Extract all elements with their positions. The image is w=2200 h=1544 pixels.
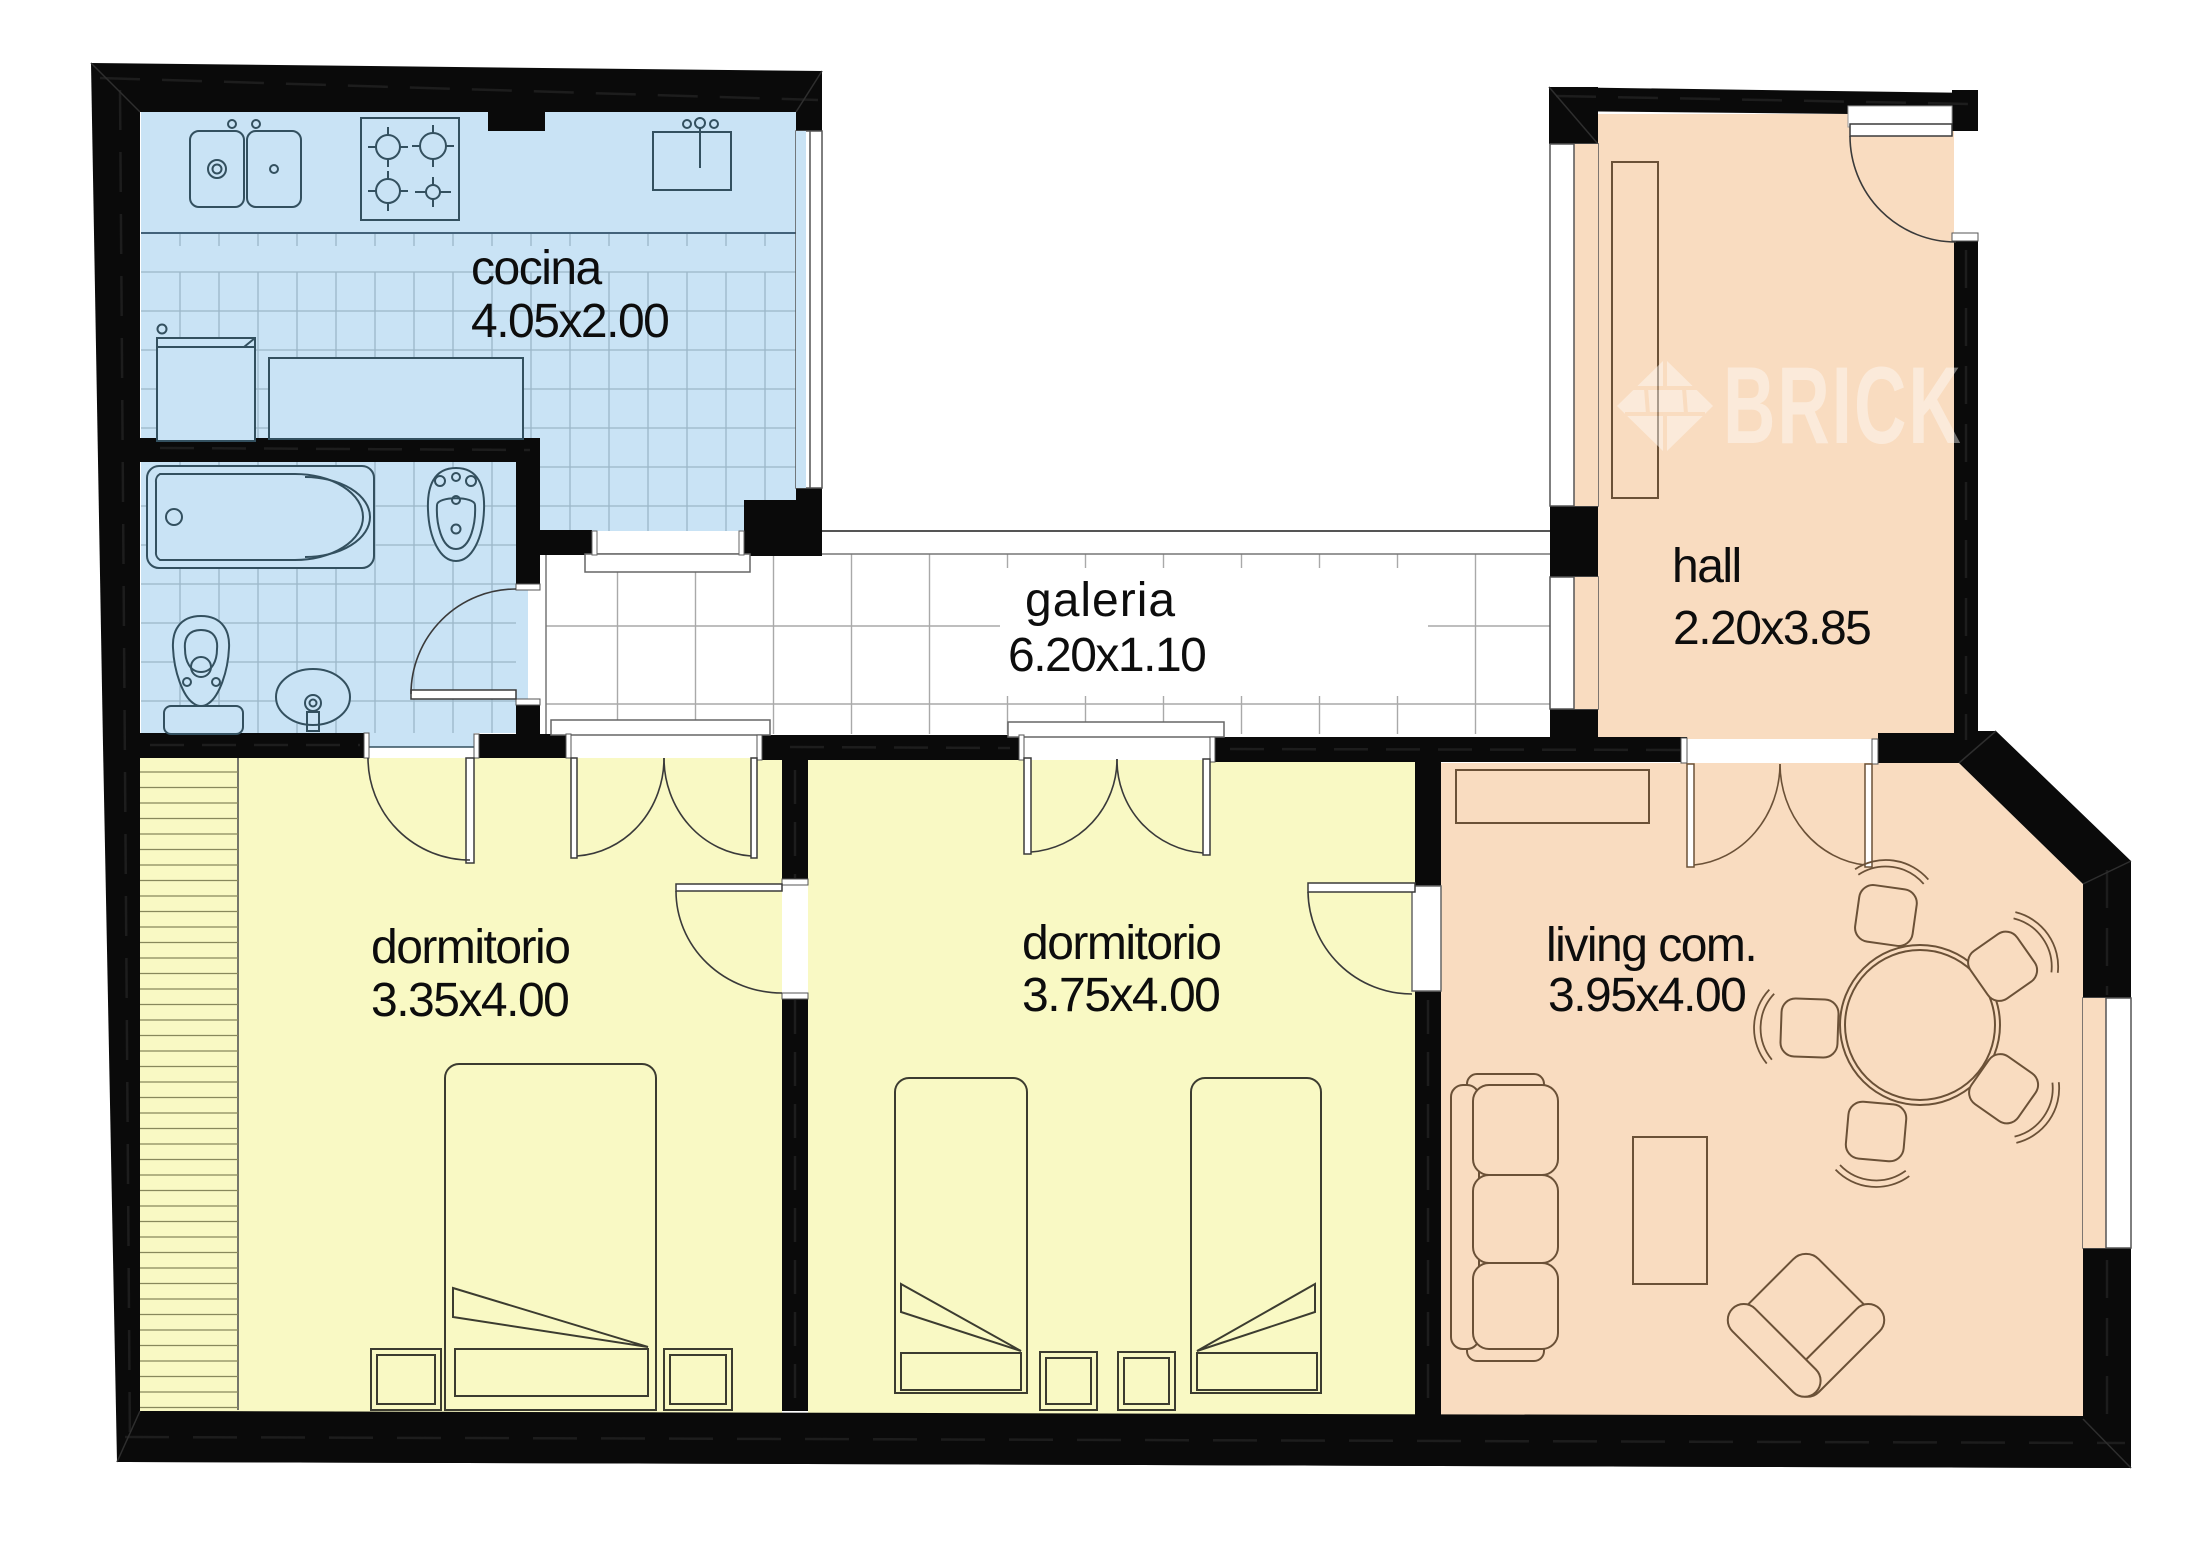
svg-text:dormitorio: dormitorio xyxy=(371,921,569,974)
svg-text:galeria: galeria xyxy=(1025,574,1176,627)
svg-text:2.20x3.85: 2.20x3.85 xyxy=(1673,602,1870,655)
svg-text:3.75x4.00: 3.75x4.00 xyxy=(1022,969,1219,1022)
svg-text:hall: hall xyxy=(1672,540,1741,593)
svg-text:4.05x2.00: 4.05x2.00 xyxy=(471,295,668,348)
svg-text:dormitorio: dormitorio xyxy=(1022,917,1220,970)
svg-text:living com.: living com. xyxy=(1546,919,1756,972)
svg-text:3.35x4.00: 3.35x4.00 xyxy=(371,974,568,1027)
svg-text:cocina: cocina xyxy=(471,242,603,295)
svg-text:6.20x1.10: 6.20x1.10 xyxy=(1008,629,1205,682)
svg-text:3.95x4.00: 3.95x4.00 xyxy=(1548,969,1745,1022)
svg-text:BRICK: BRICK xyxy=(1723,344,1963,467)
